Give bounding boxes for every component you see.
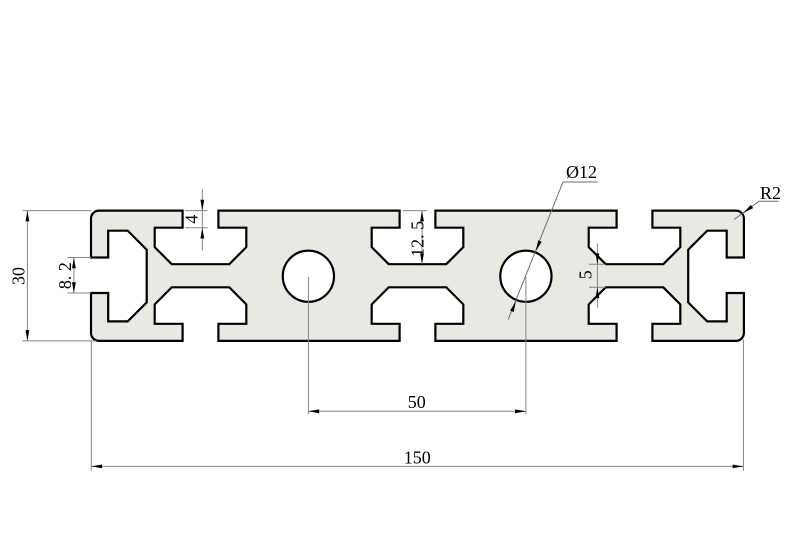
- svg-text:5: 5: [576, 270, 596, 279]
- svg-text:12. 5: 12. 5: [408, 221, 428, 257]
- svg-text:4: 4: [182, 215, 202, 224]
- svg-text:Ø12: Ø12: [566, 162, 597, 182]
- svg-text:30: 30: [9, 267, 29, 285]
- svg-text:50: 50: [408, 392, 426, 412]
- svg-text:8. 2: 8. 2: [55, 262, 75, 289]
- svg-text:150: 150: [404, 447, 431, 467]
- svg-text:R2: R2: [760, 183, 781, 203]
